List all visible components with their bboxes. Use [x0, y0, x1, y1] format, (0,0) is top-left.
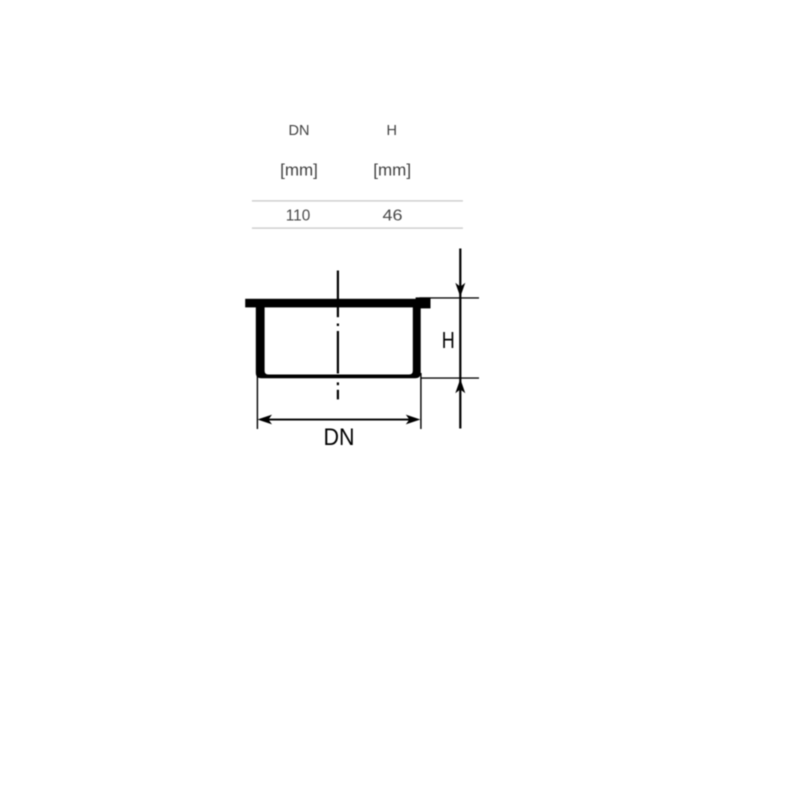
- svg-text:110: 110: [286, 207, 311, 224]
- svg-text:[mm]: [mm]: [280, 161, 318, 180]
- svg-text:H: H: [442, 327, 455, 353]
- svg-text:[mm]: [mm]: [373, 161, 411, 180]
- svg-text:DN: DN: [289, 123, 310, 139]
- svg-text:DN: DN: [324, 424, 355, 451]
- svg-text:H: H: [387, 123, 397, 139]
- svg-text:46: 46: [383, 207, 403, 224]
